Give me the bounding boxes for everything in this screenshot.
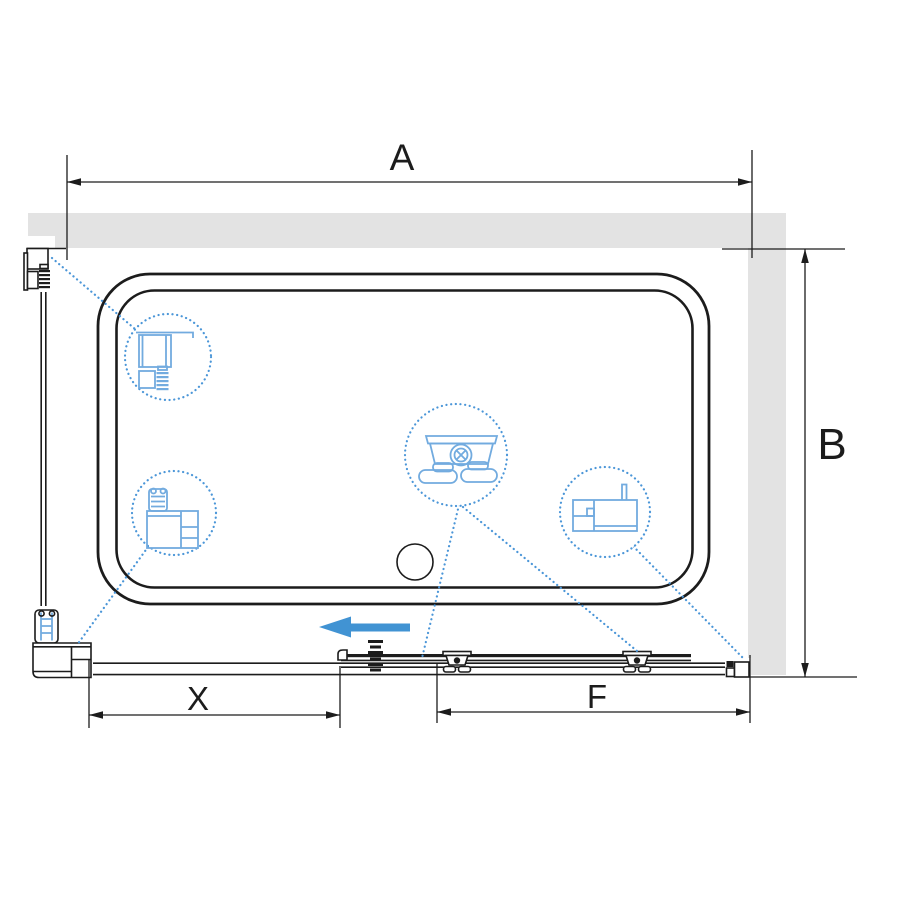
leader-bottom-left [77, 547, 148, 645]
detail-wall-profile-cross-section [125, 314, 211, 400]
door-end-clip [338, 650, 347, 660]
dimension-f: F [437, 655, 750, 723]
roller-left [443, 652, 471, 673]
bottom-track [91, 640, 726, 675]
dimension-a-label: A [390, 137, 415, 178]
bottom-right-wall-profile [725, 658, 751, 679]
detail-roller-carriage [405, 404, 507, 506]
dimension-b-label: B [817, 420, 846, 469]
arrowhead-down [801, 663, 809, 677]
detail-bottom-rail-cross-section [560, 467, 650, 557]
drain-circle [397, 544, 433, 580]
top-wall [28, 213, 786, 248]
right-wall [748, 248, 786, 675]
arrowhead-left [437, 708, 451, 716]
detail-circle [132, 471, 216, 555]
bottom-left-corner-profile [30, 606, 93, 680]
roller-right [623, 652, 651, 673]
arrowhead-up [801, 249, 809, 263]
shower-enclosure-top-view-diagram: A B X F [0, 0, 900, 900]
dimension-x-label: X [187, 680, 209, 717]
detail-corner-profile-cross-section [132, 471, 216, 555]
dimension-x: X [89, 660, 340, 728]
detail-circle [405, 404, 507, 506]
dimension-f-label: F [587, 678, 607, 715]
dimension-b: B [722, 249, 857, 677]
arrowhead-left [67, 178, 81, 186]
slide-direction-arrow-icon [319, 617, 410, 638]
arrowhead-left [89, 711, 103, 719]
left-glass-panel [41, 289, 46, 613]
arrowhead-right [736, 708, 750, 716]
arrowhead-right [738, 178, 752, 186]
detail-circle [125, 314, 211, 400]
diagram-canvas: A B X F [0, 0, 900, 900]
arrowhead-right [326, 711, 340, 719]
